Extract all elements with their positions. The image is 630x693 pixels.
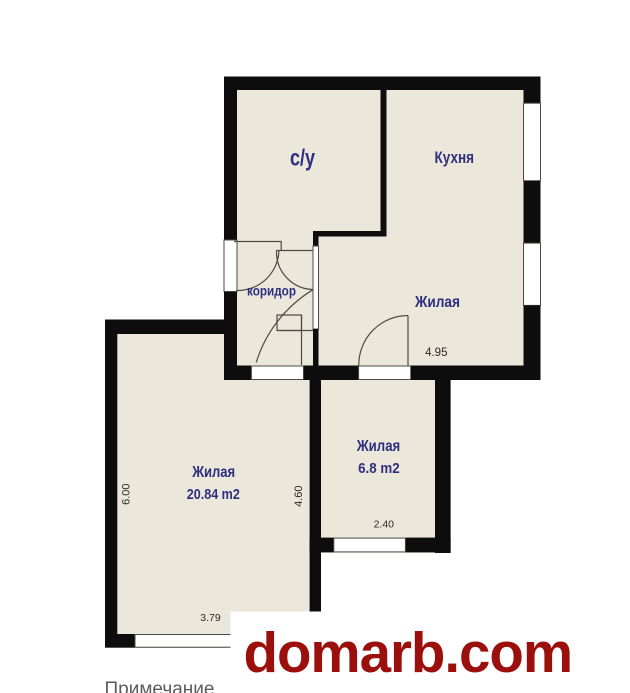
svg-text:коридор: коридор: [247, 283, 296, 299]
svg-text:2.40: 2.40: [374, 519, 395, 531]
svg-text:6.00: 6.00: [121, 483, 133, 504]
svg-text:domarb.com: domarb.com: [244, 621, 573, 684]
svg-text:3.79: 3.79: [200, 612, 221, 624]
svg-text:4.60: 4.60: [293, 485, 305, 506]
svg-text:20.84 m2: 20.84 m2: [187, 487, 240, 503]
svg-text:Жилая: Жилая: [414, 294, 460, 311]
svg-text:4.95: 4.95: [425, 347, 447, 359]
svg-text:Примечание: Примечание: [105, 679, 215, 693]
svg-text:Жилая: Жилая: [356, 438, 400, 455]
svg-text:с/у: с/у: [290, 145, 315, 171]
svg-text:Жилая: Жилая: [191, 464, 235, 481]
svg-text:6.8 m2: 6.8 m2: [358, 461, 400, 477]
svg-text:Кухня: Кухня: [435, 149, 475, 167]
